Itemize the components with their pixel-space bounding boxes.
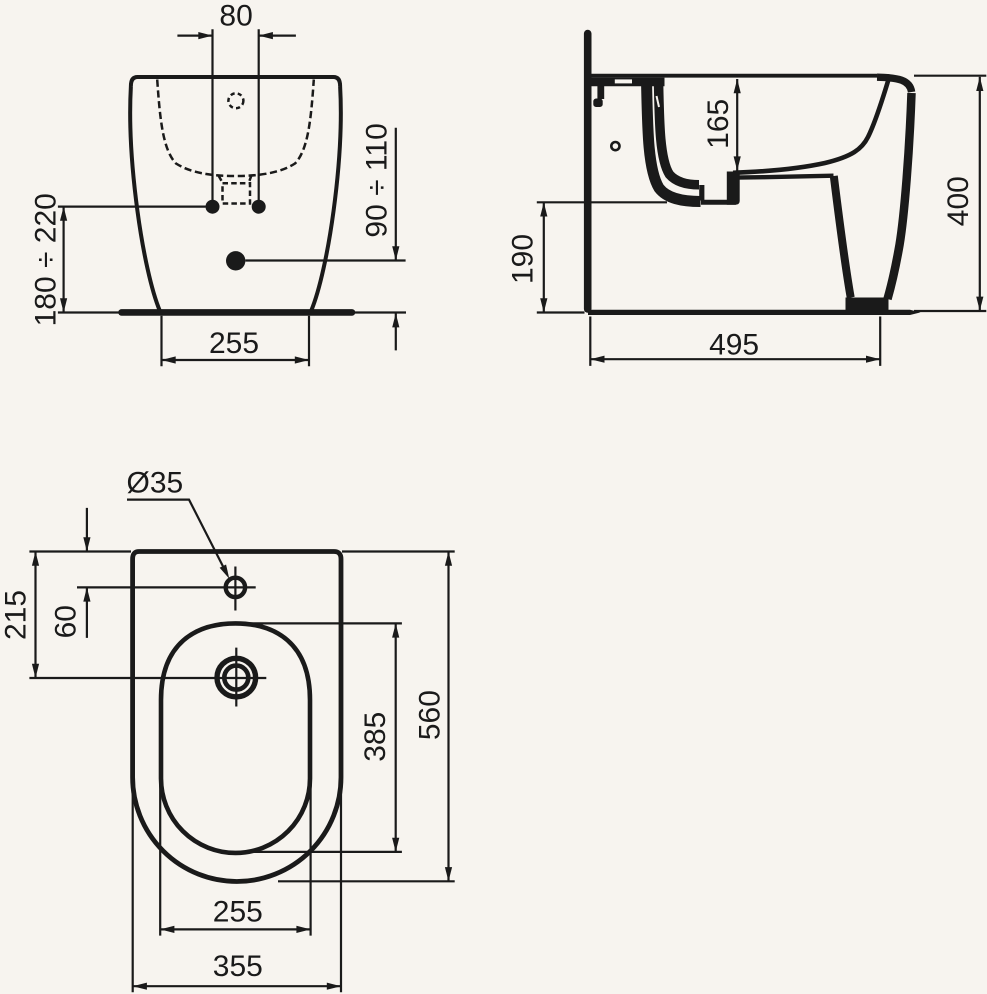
svg-text:400: 400 [942, 176, 975, 226]
svg-text:165: 165 [702, 99, 735, 149]
svg-text:215: 215 [0, 590, 33, 640]
svg-text:560: 560 [414, 690, 447, 740]
svg-text:495: 495 [709, 329, 759, 362]
svg-text:255: 255 [209, 327, 259, 360]
svg-text:80: 80 [219, 0, 252, 33]
svg-text:180 ÷ 220: 180 ÷ 220 [29, 193, 62, 326]
svg-text:Ø35: Ø35 [127, 467, 184, 500]
svg-text:190: 190 [507, 234, 540, 284]
svg-text:255: 255 [213, 895, 263, 928]
svg-text:355: 355 [213, 950, 263, 983]
svg-text:60: 60 [49, 605, 82, 638]
svg-text:90 ÷ 110: 90 ÷ 110 [361, 123, 394, 237]
svg-text:385: 385 [359, 712, 392, 762]
